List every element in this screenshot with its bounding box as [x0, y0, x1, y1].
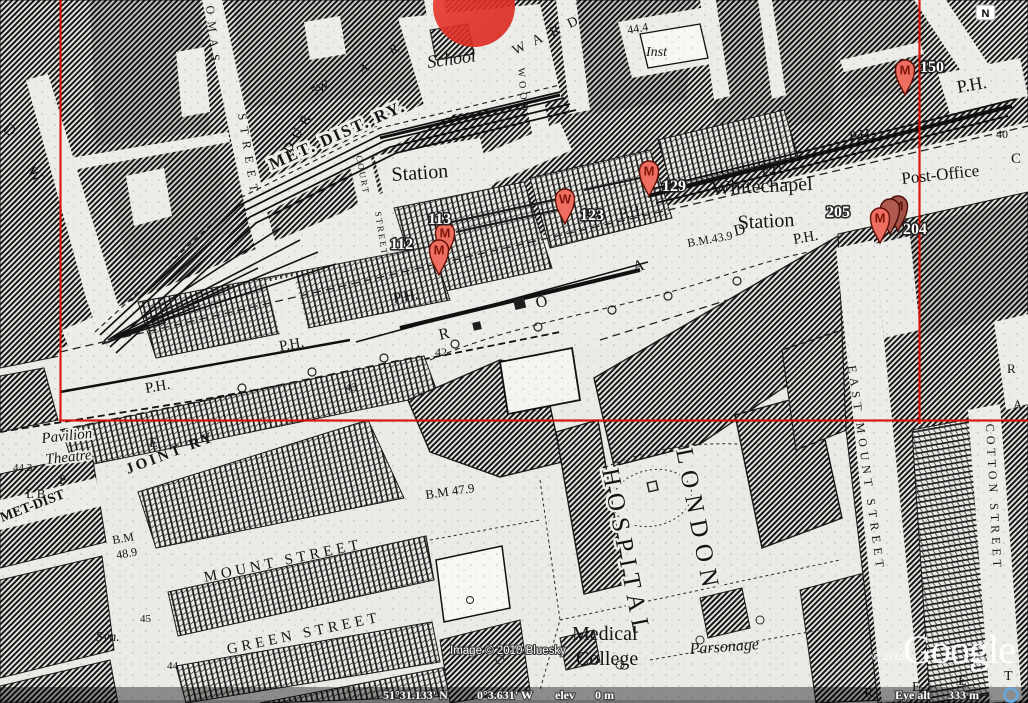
- svg-text:M: M: [875, 211, 886, 226]
- svg-text:Google: Google: [903, 627, 1016, 672]
- svg-text:College: College: [576, 648, 638, 670]
- svg-text:123: 123: [580, 207, 604, 224]
- svg-text:M: M: [900, 63, 911, 78]
- svg-text:40: 40: [996, 127, 1008, 141]
- svg-text:205: 205: [826, 204, 850, 221]
- svg-text:M: M: [434, 243, 445, 258]
- svg-text:E: E: [149, 436, 158, 451]
- svg-text:45: 45: [140, 613, 152, 625]
- svg-text:129: 129: [662, 178, 686, 195]
- svg-text:A: A: [1013, 397, 1023, 412]
- svg-text:150: 150: [920, 59, 944, 76]
- svg-text:112: 112: [390, 236, 413, 253]
- svg-text:N: N: [982, 8, 990, 20]
- svg-text:Medical: Medical: [572, 623, 638, 645]
- svg-text:42: 42: [435, 345, 447, 359]
- svg-text:44: 44: [167, 660, 179, 672]
- svg-text:Image © 2010 Bluesky: Image © 2010 Bluesky: [450, 645, 566, 657]
- svg-text:elev: elev: [555, 688, 575, 702]
- svg-text:E: E: [958, 674, 967, 689]
- svg-text:333 m: 333 m: [948, 688, 979, 702]
- svg-text:Station: Station: [391, 160, 449, 186]
- svg-text:43: 43: [345, 380, 357, 394]
- svg-text:Eye alt: Eye alt: [895, 688, 931, 702]
- svg-text:M: M: [644, 164, 655, 179]
- svg-text:Station: Station: [737, 209, 795, 234]
- svg-text:P: P: [59, 472, 66, 487]
- svg-text:44.3: 44.3: [13, 462, 33, 474]
- svg-text:Inst: Inst: [645, 45, 668, 60]
- svg-text:0 m: 0 m: [595, 688, 614, 702]
- svg-text:51°31.133' N: 51°31.133' N: [383, 688, 448, 702]
- svg-text:C: C: [1011, 151, 1021, 167]
- svg-text:L B: L B: [26, 486, 46, 501]
- svg-text:0°3.631' W: 0°3.631' W: [477, 688, 533, 702]
- svg-text:204: 204: [903, 221, 927, 238]
- svg-text:113: 113: [428, 211, 451, 228]
- svg-text:W: W: [559, 192, 572, 207]
- svg-text:Syn.: Syn.: [96, 630, 120, 645]
- svg-text:R: R: [1007, 361, 1016, 376]
